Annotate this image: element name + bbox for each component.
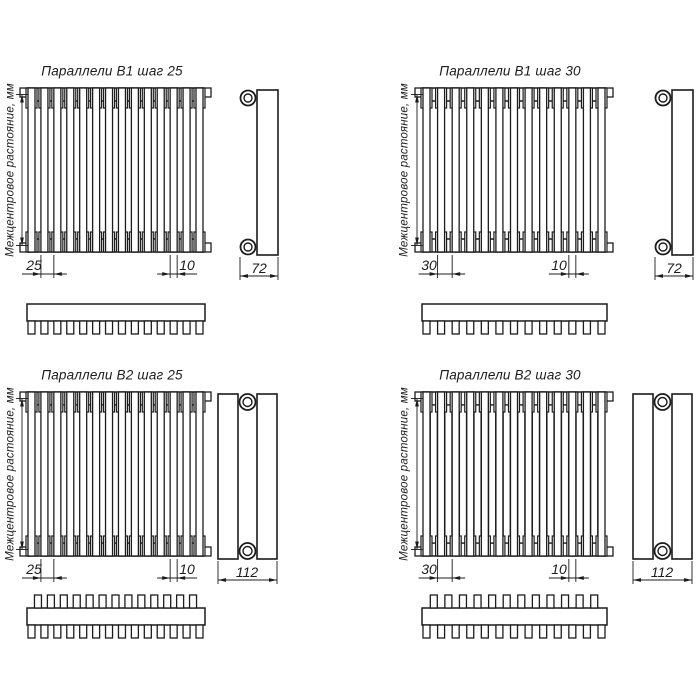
vertical-axis-label: Межцентровое растояние, мм — [5, 387, 17, 561]
step-dimension-label: 25 — [26, 258, 42, 272]
depth-dimension-label: 72 — [666, 261, 682, 275]
top-view — [422, 595, 607, 638]
step-dimension-label: 30 — [421, 258, 437, 272]
drawing-title: Параллели В2 шаг 25 — [41, 368, 183, 382]
depth-dimension-label: 112 — [651, 565, 673, 579]
vertical-axis-label: Межцентровое растояние, мм — [399, 83, 411, 257]
technical-drawing-canvas — [0, 0, 700, 700]
side-view — [633, 394, 692, 559]
depth-dimension-label: 112 — [236, 565, 258, 579]
vertical-dimension — [411, 399, 423, 550]
drawing-title: Параллели В1 шаг 25 — [41, 64, 183, 78]
drawing-title: Параллели В2 шаг 30 — [439, 368, 581, 382]
side-view — [656, 90, 694, 255]
front-view — [20, 392, 211, 556]
drawing-parallels-b1-step-30 — [411, 88, 693, 334]
front-view — [415, 88, 613, 252]
drawing-parallels-b1-step-25 — [16, 88, 278, 334]
top-view — [27, 595, 205, 638]
tube-width-dimension-label: 10 — [179, 258, 195, 272]
vertical-axis-label: Межцентровое растояние, мм — [5, 83, 17, 257]
drawing-parallels-b2-step-25 — [16, 392, 277, 638]
front-view — [20, 88, 211, 252]
tube-width-dimension-label: 10 — [179, 562, 195, 576]
drawing-sheet: Параллели В1 шаг 25 Межцентровое растоян… — [0, 0, 700, 700]
top-view — [422, 304, 607, 334]
vertical-dimension — [411, 95, 423, 246]
drawing-title: Параллели В1 шаг 30 — [439, 64, 581, 78]
front-view — [415, 392, 613, 556]
step-dimension-label: 30 — [421, 562, 437, 576]
tube-width-dimension-label: 10 — [551, 258, 567, 272]
side-view — [218, 394, 277, 559]
vertical-dimension — [16, 399, 28, 550]
drawing-parallels-b2-step-30 — [411, 392, 692, 638]
step-dimension-label: 25 — [26, 562, 42, 576]
vertical-axis-label: Межцентровое растояние, мм — [399, 387, 411, 561]
top-view — [27, 304, 205, 334]
side-view — [241, 90, 279, 255]
vertical-dimension — [16, 95, 28, 246]
depth-dimension-label: 72 — [251, 261, 267, 275]
tube-width-dimension-label: 10 — [551, 562, 567, 576]
